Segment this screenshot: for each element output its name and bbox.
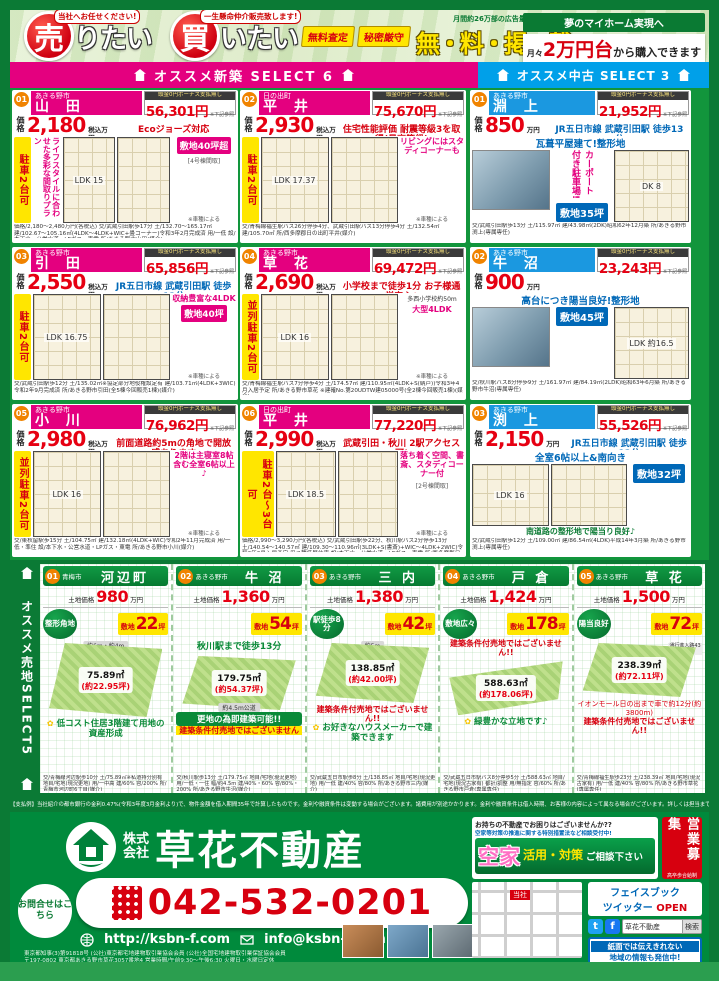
land-feature-badge: 整形角地 — [43, 609, 77, 639]
footer: 株式会社 草花不動産 お持ちの不動産でお困りはございませんか?? 空家等対策の推… — [10, 812, 709, 962]
floor-plan-2f — [551, 464, 628, 526]
floor-plan: LDK 16 — [472, 464, 549, 526]
fine-print: 交/東秋留駅歩15分 土/104.75㎡ 建/132.18㎡(4LDK+WIC)… — [14, 538, 236, 552]
monthly-offer: 月々2万円台から購入できます — [523, 34, 705, 62]
vacant-house-box: お持ちの不動産でお困りはございませんか?? 空家等対策の推進に関する特別措置法な… — [472, 817, 658, 879]
land-card-03: 03あきる野市三 内 土地価格1,380万円 駅徒歩8分 敷地42坪 約5m 1… — [307, 564, 440, 793]
land-feature-badge: 駅徒歩8分 — [310, 609, 344, 639]
listing-number: 01 — [45, 569, 60, 584]
land-callout: ✿ 緑豊かな立地です♪ — [443, 717, 568, 728]
land-feature-badge: 敷地広々 — [443, 609, 477, 639]
land-card-04: 04あきる野市戸 倉 土地価格1,424万円 敷地広々 敷地178坪 建築条件付… — [440, 564, 573, 793]
dream-block: 夢のマイホーム実現へ 月々2万円台から購入できます — [523, 13, 705, 59]
sns-column: フェイスブック ツイッター OPEN t f 草花不動産 検索 紙面では伝えきれ… — [588, 882, 702, 967]
exterior-photo — [472, 150, 550, 210]
listing-number: 04 — [445, 569, 460, 584]
house-icon — [134, 69, 146, 81]
callout-text: 全室6帖以上&南向き — [472, 450, 689, 463]
land-card-05: 05あきる野市草 花 土地価格1,500万円 陽当良好 敷地72坪 通行進入路4… — [574, 564, 705, 793]
land-warning: 建築条件付売地ではございません!! — [577, 717, 702, 735]
listing-number: 02 — [242, 92, 257, 107]
new-select-label: オススメ新築 SELECT 6 — [154, 66, 334, 85]
floor-plan-2f — [331, 137, 399, 223]
floor-plan-2f — [103, 294, 171, 380]
callout-text: 2階は主寝室8帖含む全室6帖以上♪ — [172, 451, 236, 479]
phone-icon — [112, 886, 142, 920]
website-url[interactable]: http://ksbn-f.com — [104, 932, 230, 947]
monthly-payment-box: 頭金0円ボーナス支払無し 75,670円※下記参照 — [372, 91, 464, 115]
land-plot: 179.75㎡(約54.37坪) 約4.5m公道 — [176, 654, 301, 712]
fine-print: 交/秋川駅歩13分 土/179.75㎡ 地目/宅地(現況更地) 用/一低・一住 … — [176, 775, 301, 791]
fine-print: 交/青梅線河辺駅歩10分 土/75.89㎡※私道持分別有 地目/宅地(現況更地)… — [43, 775, 168, 791]
fine-print: 交/秋川駅バス8分停歩9分 土/161.97㎡ 建/84.19㎡(2LDK)昭和… — [472, 380, 689, 394]
land-price: 1,424 — [488, 587, 536, 606]
listing-number: 04 — [242, 249, 257, 264]
secrecy-badge: 秘密厳守 — [357, 26, 411, 47]
section-bars: オススメ新築 SELECT 6 オススメ中古 SELECT 3 — [10, 62, 709, 88]
fine-print: 交/武蔵引田駅歩12分 土/109.00㎡ 建/86.54㎡(4LDK)平成14… — [472, 538, 689, 552]
flyer-page: 当社へお任せください! 売 りたい 一生懸命仲介販売致します! 買 いたい 無料… — [0, 0, 719, 981]
land-section: オススメ売地SELECT5 01青梅市河辺町 土地価格980万円 整形角地 敷地… — [10, 560, 709, 797]
listing-number: 03 — [312, 569, 327, 584]
floor-plan-2f — [338, 451, 398, 537]
price: 900 — [485, 273, 524, 291]
station-access: JR五日市線 武蔵引田駅 徒歩12分 — [571, 440, 687, 450]
shop-photos — [342, 924, 474, 958]
monthly-payment-box: 頭金0円ボーナス支払無し 69,472円※下記参照 — [372, 248, 464, 272]
parking-badge: 駐車2台〜3台可 — [242, 451, 274, 537]
land-plot: 588.63㎡(約178.06坪) — [443, 659, 568, 717]
floor-plan: LDK 15 — [63, 137, 116, 223]
land-callout: ✿ お好きなハウスメーカーで建築できます — [310, 723, 435, 744]
listing-number: 03 — [472, 406, 487, 421]
listing-number: 05 — [14, 406, 29, 421]
phone-banner: 042-532-0201 — [76, 878, 468, 928]
price: 2,690 — [255, 273, 313, 291]
fine-print: 交/青梅線福生駅歩23分 土/238.39㎡ 地目/宅地(現況古家有) 用/一低… — [577, 775, 702, 791]
callout-text: 瓦葺平屋建て!整形地 — [472, 136, 689, 149]
price: 2,150 — [485, 430, 543, 448]
land-warning: 建築条件付売地ではございません!! — [310, 705, 435, 723]
lot-size-badge: 敷地40坪 — [181, 305, 227, 322]
listing-number: 02 — [472, 249, 487, 264]
land-card-01: 01青梅市河辺町 土地価格980万円 整形角地 敷地22坪 約6m・約4m 75… — [40, 564, 173, 793]
flower-icon: ✿ — [47, 719, 54, 728]
listing-card-new-05: 05 あきる野市小 川 頭金0円ボーナス支払無し 76,962円※下記参照 価格… — [12, 404, 238, 557]
land-price: 1,500 — [622, 587, 670, 606]
land-feature-badge: 陽当良好 — [577, 609, 611, 639]
listings-grid: 01 あきる野市山 田 頭金0円ボーナス支払無し 56,301円※下記参照 価格… — [10, 88, 709, 560]
used-select-bar: オススメ中古 SELECT 3 — [478, 62, 709, 88]
flower-icon: ✿ — [313, 723, 320, 732]
lot-size-badge: 敷地32坪 — [633, 464, 685, 483]
land-price: 980 — [96, 587, 128, 606]
fine-print: 価格/2,180〜2,480万円(各税込) 交/武蔵引田駅歩17分 土/132.… — [14, 224, 236, 238]
monthly-payment-box: 頭金0円ボーナス支払無し 21,952円※下記参照 — [597, 91, 689, 115]
lot-size-badge: 敷地40坪超 — [177, 137, 232, 154]
monthly-payment-box: 頭金0円ボーナス支払無し 76,962円※下記参照 — [144, 405, 236, 429]
floor-plan: LDK 約16.5 — [614, 307, 689, 379]
land-green-note: 秋川駅まで徒歩13分 — [176, 639, 301, 652]
sell-bubble: 当社へお任せください! — [54, 10, 140, 24]
listing-card-new-01: 01 あきる野市山 田 頭金0円ボーナス支払無し 56,301円※下記参照 価格… — [12, 90, 238, 243]
land-plot: 約6m・約4m 75.89㎡(約22.95坪) — [43, 641, 168, 719]
exterior-photo — [472, 307, 550, 367]
monthly-payment-box: 頭金0円ボーナス支払無し 55,526円※下記参照 — [597, 405, 689, 429]
feature-text: Ecoジョーズ対応 — [113, 126, 234, 136]
price: 2,990 — [255, 430, 313, 448]
land-plot: 約5m 138.85㎡(約42.00坪) — [310, 641, 435, 705]
land-extra-note: イオンモール日の出まで車で約12分(約3800m) — [577, 699, 702, 717]
price: 2,980 — [27, 430, 85, 448]
contact-label: お問合せはこちら — [18, 884, 72, 938]
shop-photo — [432, 924, 474, 958]
parking-badge: 駐車2台可 — [14, 294, 31, 380]
parking-badge: 駐車2台可 — [14, 137, 31, 223]
parking-badge: 並列駐車2台可 — [14, 451, 31, 537]
price: 2,550 — [27, 273, 85, 291]
used-select-label: オススメ中古 SELECT 3 — [517, 67, 670, 84]
feature-text: 住宅性能評価 耐震等級3を取得(最高等級) — [341, 126, 462, 136]
listing-number: 02 — [178, 569, 193, 584]
listing-card-used-02: 02 あきる野市牛 沼 頭金0円ボーナス支払無し 23,243円※下記参照 価格… — [470, 247, 691, 400]
land-price: 1,360 — [222, 587, 270, 606]
company-name: 草花不動産 — [155, 818, 365, 876]
callout-text: リビングにはスタディコーナーも — [400, 137, 464, 155]
floor-plan: DK 8 — [614, 150, 689, 222]
floor-plan: LDK 16 — [261, 294, 329, 380]
akiya-label: 空家 — [478, 841, 520, 871]
tsubo-badge: 敷地72坪 — [651, 613, 702, 635]
listing-card-new-03: 03 あきる野市引 田 頭金0円ボーナス支払無し 65,856円※下記参照 価格… — [12, 247, 238, 400]
tsubo-badge: 敷地54坪 — [251, 613, 302, 635]
floor-plan-2f — [331, 294, 399, 380]
listing-number: 05 — [579, 569, 594, 584]
tsubo-badge: 敷地178坪 — [507, 613, 569, 635]
monthly-payment-box: 頭金0円ボーナス支払無し 56,301円※下記参照 — [144, 91, 236, 115]
listing-card-new-02: 02 日の出町平 井 頭金0円ボーナス支払無し 75,670円※下記参照 価格2… — [240, 90, 466, 243]
fine-print: 交/武蔵引田駅歩13分 土/115.97㎡ 建/43.98㎡(2DK)昭和62年… — [472, 223, 689, 237]
callout-text: 収納豊富な4LDK — [172, 294, 236, 303]
listing-card-used-03: 03 あきる野市渕 上 頭金0円ボーナス支払無し 55,526円※下記参照 価格… — [470, 404, 691, 557]
listing-number: 06 — [242, 406, 257, 421]
flower-icon: ✿ — [464, 717, 471, 726]
parking-badge: 駐車2台可 — [242, 137, 259, 223]
bottom-strip — [0, 962, 719, 981]
land-price: 1,380 — [355, 587, 403, 606]
lot-size-badge: 敷地35坪 — [556, 203, 608, 222]
floor-plan: LDK 16 — [33, 451, 101, 537]
access-map: 当社 — [472, 882, 582, 958]
price: 2,180 — [27, 116, 85, 134]
phone-number[interactable]: 042-532-0201 — [148, 883, 433, 923]
top-banner: 当社へお任せください! 売 りたい 一生懸命仲介販売致します! 買 いたい 無料… — [10, 10, 709, 62]
floor-plan-2f — [117, 137, 170, 223]
search-query[interactable]: 草花不動産 — [623, 922, 682, 932]
callout-text: 落ち着く空間、書斎、スタディコーナー付 — [400, 451, 464, 479]
floor-plan-2f — [103, 451, 171, 537]
map-here-label: 当社 — [510, 890, 530, 900]
recruit-box: 営業募集 高卒歩合給制 — [662, 817, 702, 879]
lot-size-badge: 敷地45坪 — [556, 307, 608, 326]
floor-plan: LDK 17.37 — [261, 137, 329, 223]
listing-number: 03 — [14, 249, 29, 264]
sell-group: 当社へお任せください! 売 りたい — [24, 11, 152, 61]
side-copy: カーポート付き駐車場! — [569, 150, 595, 200]
payment-example-disclaimer: 【支払例】当社紹介の都市銀行の金利0.47%(令和3年度3月金利より)で、物件金… — [10, 799, 709, 812]
fine-print: 交/青梅線福生駅バス26分停歩4分、武蔵引田駅バス13分停歩4分 土/132.5… — [242, 224, 464, 238]
land-warning: 建築条件付売地ではございません!! — [443, 639, 568, 657]
fine-print: 交/武蔵五日市駅バス8分停歩5分 土/588.63㎡ 地目/宅地(現況古家有) … — [443, 775, 568, 791]
callout-text: 高台につき陽当良好!整形地 — [472, 293, 689, 306]
buy-bubble: 一生懸命仲介販売致します! — [200, 10, 301, 24]
dream-title: 夢のマイホーム実現へ — [523, 13, 705, 32]
fine-print: 交/武蔵五日市駅歩8分 土/138.85㎡ 地目/宅地(現況更地) 用/一低 建… — [310, 775, 435, 791]
listing-number: 01 — [14, 92, 29, 107]
station-access: JR五日市線 武蔵引田駅 徒歩13分 — [552, 126, 687, 136]
land-card-02: 02あきる野市牛 沼 土地価格1,360万円 敷地54坪 秋川駅まで徒歩13分 … — [173, 564, 306, 793]
fine-print: 交/青梅線福生駅バス7分停歩4分 土/174.57㎡ 建/110.95㎡(4LD… — [242, 381, 464, 395]
monthly-payment-box: 頭金0円ボーナス支払無し 23,243円※下記参照 — [597, 248, 689, 272]
side-copy: ライフスタイルに合わせた多彩な間取りプラン — [33, 137, 61, 223]
land-sidebar-label: オススメ売地SELECT5 — [19, 581, 36, 776]
twitter-icon[interactable]: t — [588, 919, 603, 934]
globe-icon — [80, 933, 94, 947]
feature-text: 小学校まで徒歩1分 お子様通学安心♪ — [341, 283, 462, 293]
house-icon — [21, 567, 33, 579]
station-access: JR五日市線 武蔵引田駅 徒歩12分 — [113, 283, 234, 293]
company-logo-icon — [65, 821, 117, 873]
land-sidebar: オススメ売地SELECT5 — [14, 564, 40, 793]
land-plot: 通行進入路43条但し書 238.39㎡(約72.11坪) — [577, 641, 702, 699]
price: 2,930 — [255, 116, 313, 134]
monthly-payment-box: 頭金0円ボーナス支払無し 65,856円※下記参照 — [144, 248, 236, 272]
buy-group: 一生懸命仲介販売致します! 買 いたい — [170, 11, 298, 61]
house-icon — [342, 69, 354, 81]
free-assessment-badge: 無料査定 — [301, 26, 355, 47]
land-highlight-box: 更地の為即建築可能!! — [176, 712, 301, 726]
floor-plan: LDK 18.5 — [276, 451, 336, 537]
land-warning: 建築条件付売地ではございません — [176, 726, 301, 735]
company-prefix: 株式 — [123, 833, 149, 847]
monthly-payment-box: 頭金0円ボーナス支払無し 77,220円※下記参照 — [372, 405, 464, 429]
new-select-bar: オススメ新築 SELECT 6 — [10, 62, 478, 88]
mail-icon — [240, 933, 254, 947]
listing-card-used-01: 01 あきる野市淵 上 頭金0円ボーナス支払無し 21,952円※下記参照 価格… — [470, 90, 691, 243]
floor-plan: LDK 16.75 — [33, 294, 101, 380]
tsubo-badge: 敷地42坪 — [385, 613, 436, 635]
search-button[interactable]: 検索 — [682, 920, 701, 933]
listing-number: 01 — [472, 92, 487, 107]
callout-text: 大型4LDK — [412, 305, 452, 314]
search-box[interactable]: 草花不動産 検索 — [622, 919, 702, 934]
land-callout: ✿ 低コスト住居3階建て用地の資産形成 — [43, 719, 168, 740]
shop-photo — [387, 924, 429, 958]
tsubo-badge: 敷地22坪 — [118, 613, 169, 635]
fine-print: 価格/2,990〜3,290万円(各税込) 交/武蔵引田駅歩22分、秋川駅バス2… — [242, 538, 464, 552]
listing-card-new-04: 04 あきる野市草 花 頭金0円ボーナス支払無し 69,472円※下記参照 価格… — [240, 247, 466, 400]
fine-print: 交/武蔵引田駅歩12分 土/135.02㎡※協定部分地役権設定有 建/103.7… — [14, 381, 236, 395]
feature-text: 武蔵引田・秋川 2駅アクセス可! — [341, 440, 462, 450]
house-icon — [497, 69, 509, 81]
house-icon — [21, 778, 33, 790]
facebook-icon[interactable]: f — [605, 919, 620, 934]
parking-badge: 並列駐車2台可 — [242, 294, 259, 380]
listing-card-new-06: 06 日の出町平 井 頭金0円ボーナス支払無し 77,220円※下記参照 価格2… — [240, 404, 466, 557]
shop-photo — [342, 924, 384, 958]
house-icon — [678, 69, 690, 81]
price: 850 — [485, 116, 524, 134]
feature-text: 前面道路約5mの角地で開放感あります — [113, 440, 234, 450]
